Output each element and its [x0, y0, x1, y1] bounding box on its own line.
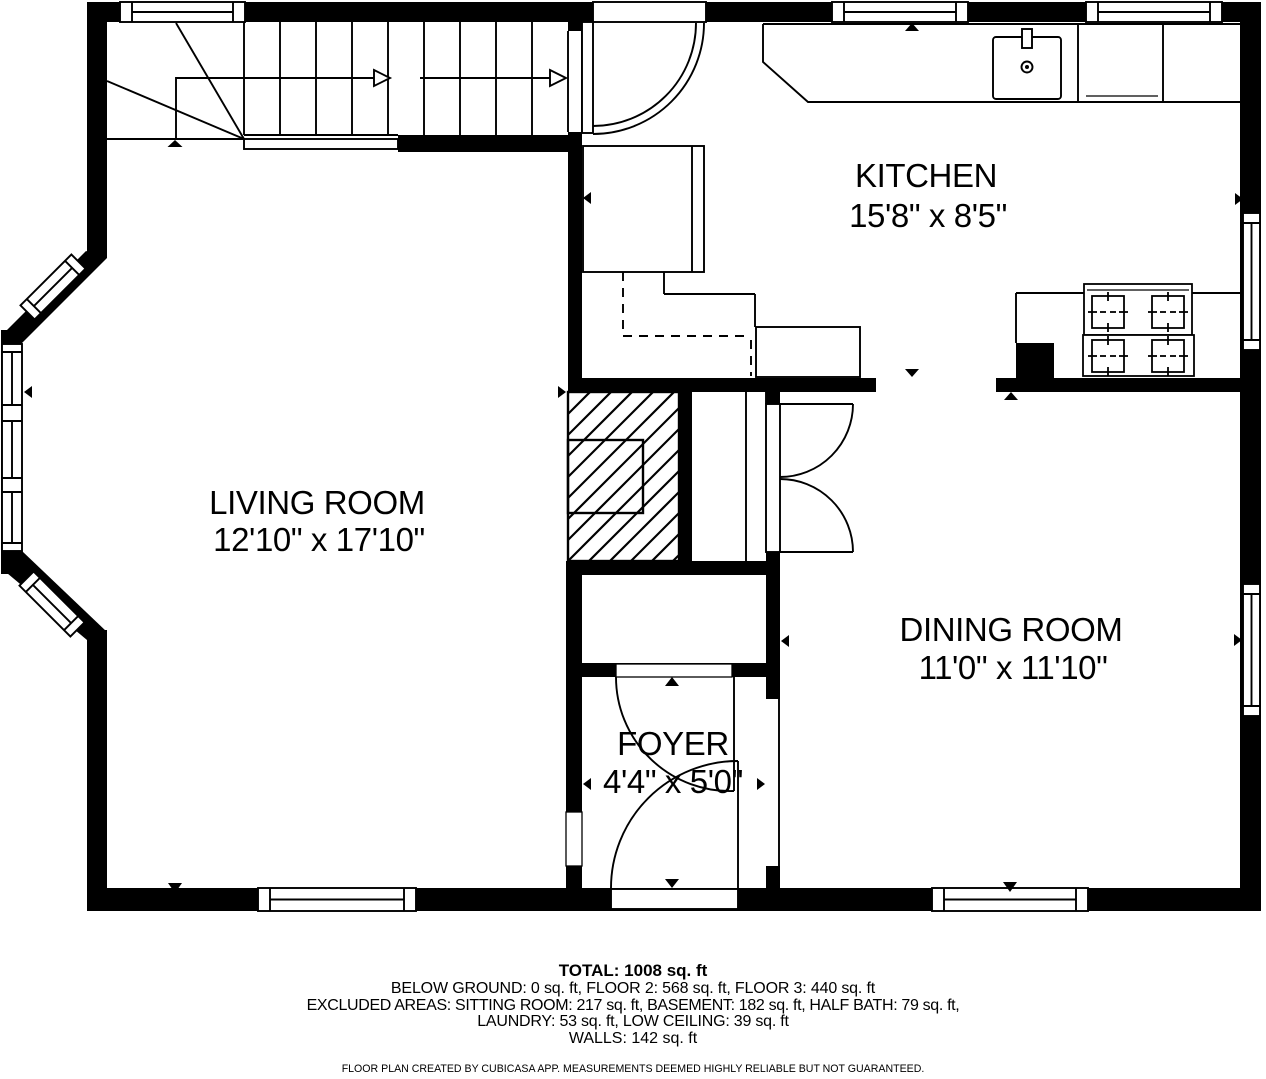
svg-text:11'0" x 11'10": 11'0" x 11'10"	[919, 649, 1108, 686]
svg-text:FLOOR PLAN CREATED BY CUBICASA: FLOOR PLAN CREATED BY CUBICASA APP. MEAS…	[342, 1063, 925, 1075]
svg-text:TOTAL: 1008 sq. ft: TOTAL: 1008 sq. ft	[559, 961, 708, 980]
svg-text:LIVING ROOM: LIVING ROOM	[209, 484, 425, 521]
svg-text:12'10" x 17'10": 12'10" x 17'10"	[213, 521, 425, 558]
svg-text:EXCLUDED AREAS: SITTING ROOM:: EXCLUDED AREAS: SITTING ROOM: 217 sq. ft…	[307, 997, 960, 1014]
svg-text:WALLS: 142 sq. ft: WALLS: 142 sq. ft	[569, 1030, 698, 1047]
svg-text:BELOW GROUND: 0 sq. ft, FLOOR: BELOW GROUND: 0 sq. ft, FLOOR 2: 568 sq.…	[391, 980, 876, 997]
svg-text:15'8" x 8'5": 15'8" x 8'5"	[849, 197, 1007, 234]
svg-text:KITCHEN: KITCHEN	[855, 157, 997, 194]
svg-text:4'4" x 5'0": 4'4" x 5'0"	[603, 763, 743, 800]
svg-text:LAUNDRY: 53 sq. ft, LOW CEILIN: LAUNDRY: 53 sq. ft, LOW CEILING: 39 sq. …	[477, 1013, 789, 1030]
svg-text:DINING ROOM: DINING ROOM	[900, 611, 1123, 648]
svg-text:FOYER: FOYER	[617, 725, 729, 762]
